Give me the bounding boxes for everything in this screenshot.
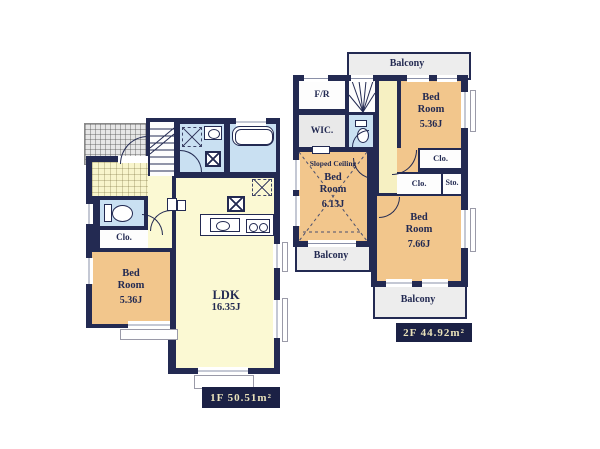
bedroom-ne-name: Bed Room [412, 92, 450, 116]
toilet-tank-2f [355, 120, 367, 127]
door-ldk-leaf-1 [167, 198, 177, 211]
balcony-top-label: Balcony [348, 58, 466, 69]
bathtub-inner [235, 129, 273, 145]
toilet-bowl-1f [112, 205, 133, 222]
free-room-label: F/R [299, 90, 345, 101]
wic-door-opening [312, 146, 330, 154]
wic-label: WIC. [299, 126, 345, 137]
balcony-bottom-label: Balcony [374, 294, 462, 305]
floorplan-image: Clo. Bed Room 5.36J LDK 16.35J 1F 50.51m… [0, 0, 600, 449]
window-ldk-right-1 [273, 244, 281, 268]
window-bedroom-se-bottom-2 [422, 279, 448, 287]
shutter-rail-se [470, 208, 476, 252]
window-bedroom-bottom [128, 321, 170, 329]
staircase-1f-treads [150, 122, 174, 176]
kitchen-sink-bowl [216, 221, 230, 231]
window-bedroom-se-bottom-1 [386, 279, 412, 287]
bedroom-w-name: Bed Room [314, 172, 352, 196]
closet-se-label: Clo. [397, 179, 441, 189]
window-sill-bedroom [120, 329, 178, 340]
window-stairs-top [351, 75, 373, 82]
storage-label: Sto. [443, 179, 461, 188]
bedroom-se-size: 7.66J [398, 239, 440, 250]
closet-1f-label: Clo. [100, 232, 148, 242]
bedroom-w-size: 6.13J [314, 199, 352, 210]
door-ldk-leaf-2 [177, 200, 186, 211]
bedroom-se-name: Bed Room [398, 212, 440, 236]
window-bedroom-left [85, 258, 93, 284]
stove-burner-2 [259, 223, 268, 232]
bedroom-1f-name: Bed Room [112, 268, 150, 292]
ldk-size: 16.35J [195, 302, 257, 314]
shutter-rail-ldk-1 [282, 242, 288, 272]
appliance-box [227, 196, 245, 212]
window-bedroom-w-left-1 [292, 160, 300, 190]
entrance-genkan [92, 162, 148, 196]
window-toilet-left [85, 204, 93, 224]
staircase-2f-treads [349, 81, 375, 112]
window-bedroom-w-bottom [308, 240, 356, 247]
hallway-2f [379, 81, 397, 193]
window-ldk-bottom [198, 367, 248, 375]
shutter-rail-ldk-2 [282, 298, 288, 342]
floor-area-label-2f: 2F 44.92m² [396, 323, 472, 342]
ldk-name: LDK [195, 288, 257, 302]
floor-area-label-1f: 1F 50.51m² [202, 387, 280, 408]
window-bedroom-ne-top-1 [407, 75, 429, 82]
closet-ne-label: Clo. [420, 154, 461, 164]
ldk-room [176, 178, 274, 368]
shutter-rail-ne [470, 90, 476, 132]
bedroom-1f-size: 5.36J [112, 295, 150, 306]
window-bathroom-top [236, 118, 266, 126]
window-ldk-right-2 [273, 300, 281, 338]
window-fr-top [304, 75, 328, 82]
refrigerator-space [252, 179, 272, 196]
toilet-tank-1f [104, 204, 112, 222]
window-bedroom-w-left-2 [292, 196, 300, 226]
window-bedroom-se-right [461, 210, 469, 248]
window-bedroom-ne-right [461, 92, 469, 128]
washing-machine-space [182, 127, 202, 147]
window-bedroom-ne-top-2 [437, 75, 457, 82]
stove-burner-1 [249, 223, 258, 232]
balcony-left-label: Balcony [296, 250, 366, 261]
wash-basin-bowl [208, 129, 220, 139]
sloped-ceiling-label: Sloped Ceiling [301, 160, 365, 168]
water-heater-box [205, 151, 221, 167]
bedroom-ne-size: 5.36J [412, 119, 450, 130]
